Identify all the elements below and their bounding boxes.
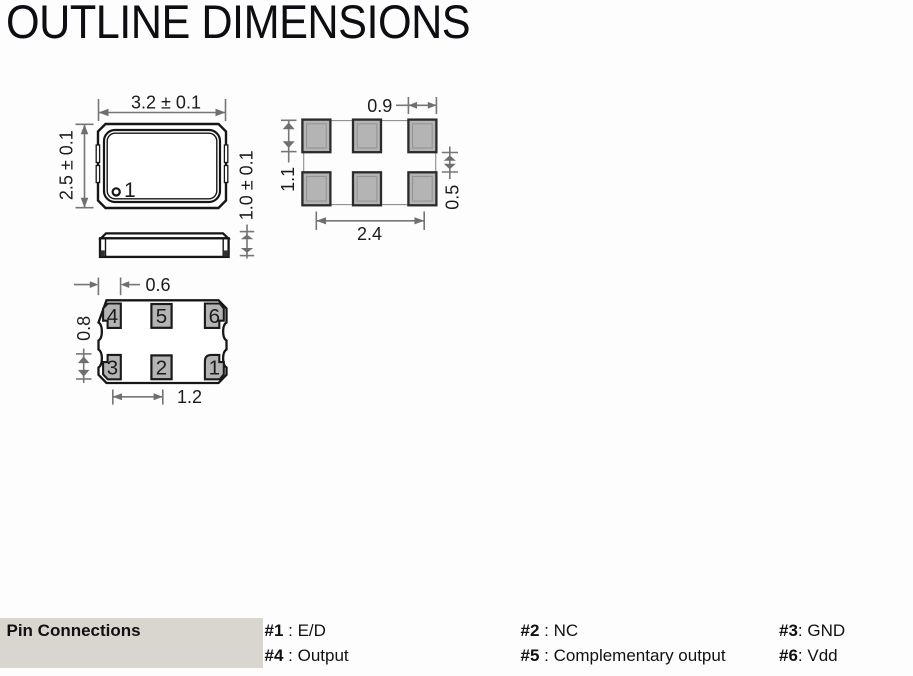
svg-text:0.8: 0.8 — [74, 316, 94, 341]
svg-text:5: 5 — [156, 305, 167, 328]
svg-text:2.4: 2.4 — [357, 224, 382, 244]
svg-text:2.5 ± 0.1: 2.5 ± 0.1 — [57, 130, 77, 200]
svg-text:1: 1 — [209, 356, 220, 379]
svg-text:4: 4 — [107, 305, 118, 328]
svg-text:0.9: 0.9 — [367, 96, 392, 116]
svg-text:1.2: 1.2 — [177, 387, 202, 407]
svg-text:1.1: 1.1 — [278, 167, 298, 192]
svg-text:0.6: 0.6 — [145, 275, 170, 295]
svg-text:3.2 ± 0.1: 3.2 ± 0.1 — [131, 93, 201, 113]
svg-text:0.5: 0.5 — [443, 185, 463, 210]
svg-text:1.0 ± 0.1: 1.0 ± 0.1 — [237, 150, 257, 220]
svg-text:3: 3 — [107, 356, 118, 379]
svg-text:1: 1 — [124, 179, 136, 202]
svg-text:2: 2 — [156, 356, 167, 379]
svg-text:6: 6 — [209, 305, 220, 328]
